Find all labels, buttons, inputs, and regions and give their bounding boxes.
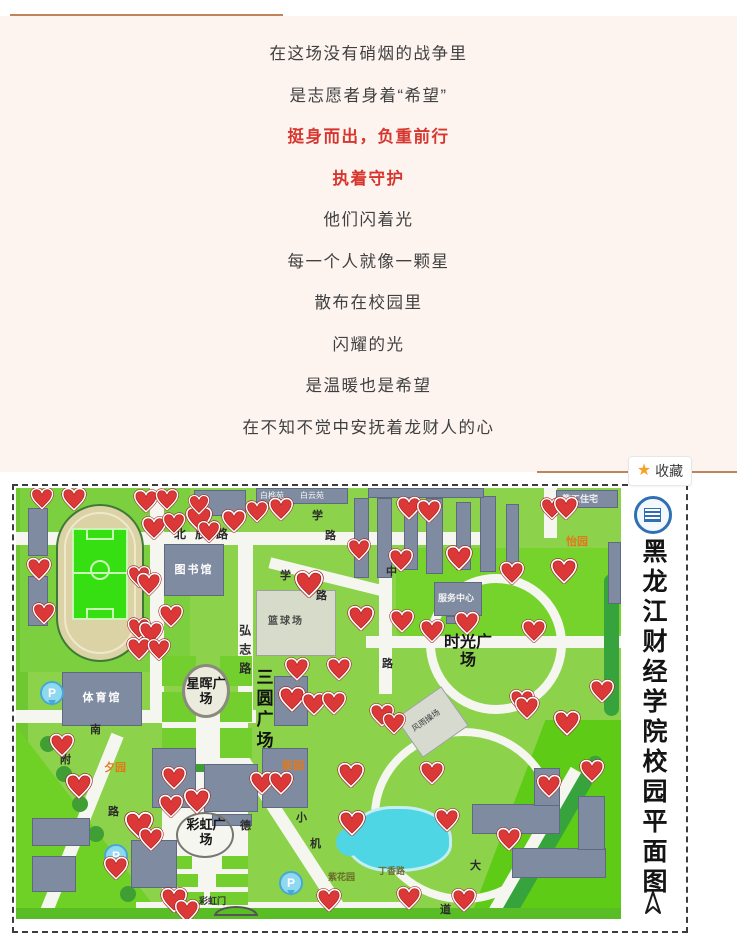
heart-icon [49, 733, 75, 762]
poem-line: 挺身而出，负重前行 [0, 117, 737, 159]
map-label: 紫花园 [328, 872, 355, 882]
heart-icon [338, 810, 366, 841]
map-shape [28, 508, 48, 556]
map-shape [506, 504, 519, 564]
heart-icon [136, 572, 162, 601]
map-label: 大 [470, 860, 481, 873]
map-shape [512, 848, 606, 878]
map-shape [88, 826, 104, 842]
map-label: 星晖广场 [182, 677, 230, 707]
heart-icon [347, 605, 375, 636]
map-shape [120, 886, 136, 902]
map-path-ring [86, 608, 114, 620]
heart-icon [30, 488, 54, 515]
heart-icon [197, 520, 221, 548]
heart-icon [26, 557, 52, 586]
map-shape [578, 796, 605, 850]
map-label: 道 [440, 904, 451, 917]
heart-icon [174, 899, 200, 919]
heart-icon [536, 774, 562, 803]
map-title-text: 黑龙江财经学院校园平面图 [640, 538, 665, 898]
map-shape [32, 818, 90, 846]
heart-icon [65, 773, 93, 804]
favorite-button-label: 收藏 [655, 461, 683, 481]
heart-icon [103, 856, 129, 885]
map-label: 白云苑 [300, 491, 324, 500]
heart-icon [550, 558, 578, 589]
heart-icon [347, 538, 371, 566]
map-shape [480, 496, 496, 572]
top-divider-line [10, 14, 283, 16]
map-path-ring [90, 560, 110, 580]
heart-icon [579, 759, 605, 788]
heart-icon [61, 488, 87, 516]
campus-map-image[interactable]: 北辰路学路学路中路弘志路三圆广场星晖广场时光广场彩虹广场图书馆体育馆教工住宅服务… [12, 484, 688, 933]
heart-icon [221, 509, 247, 538]
poem-line: 散布在校园里 [0, 283, 737, 325]
heart-icon [499, 561, 525, 590]
map-label: 小 [296, 812, 307, 825]
heart-icon [162, 512, 186, 540]
map-shape [368, 488, 484, 498]
map-label: 机 [310, 838, 321, 851]
map-label: 体育馆 [66, 692, 138, 705]
heart-icon [183, 788, 211, 819]
heart-icon [419, 619, 445, 648]
heart-icon [589, 679, 615, 708]
heart-icon [268, 497, 294, 526]
heart-icon [158, 794, 184, 823]
map-label: 怡园 [566, 536, 588, 549]
map-label: 德 [240, 820, 251, 833]
heart-icon [496, 827, 522, 856]
parking-icon: P [40, 681, 64, 705]
map-path-ring [86, 528, 114, 540]
star-icon: ★ [637, 463, 651, 479]
heart-icon [268, 771, 294, 800]
heart-icon [521, 619, 547, 648]
map-label: 丁香路 [378, 866, 405, 876]
map-shape [238, 532, 253, 714]
poem-line: 他们闪着光 [0, 200, 737, 242]
map-title-strip: 黑龙江财经学院校园平面图 [621, 488, 684, 929]
poem-line: 在不知不觉中安抚着龙财人的心 [0, 408, 737, 450]
map-label: 学 [312, 510, 323, 523]
heart-icon [388, 548, 414, 577]
map-shape [216, 874, 248, 887]
poem-line: 是志愿者身着“希望” [0, 76, 737, 118]
school-logo-icon [634, 496, 672, 534]
article-page: 在这场没有硝烟的战争里是志愿者身着“希望”挺身而出，负重前行执着守护他们闪着光每… [0, 0, 737, 940]
map-shape [608, 542, 621, 604]
map-label: 弘志路 [237, 624, 251, 681]
heart-icon [389, 609, 415, 638]
heart-icon [321, 691, 347, 720]
poem-line: 每一个人就像一颗星 [0, 242, 737, 284]
map-label: 路 [108, 806, 119, 819]
map-label: 彩虹广场 [182, 818, 230, 848]
heart-icon [445, 545, 473, 576]
map-label: 夕园 [104, 762, 126, 775]
map-label: 三圆广场 [253, 668, 273, 752]
heart-icon [514, 696, 540, 725]
map-label: 服务中心 [438, 593, 474, 603]
poem-line: 闪耀的光 [0, 325, 737, 367]
poem-text-block: 在这场没有硝烟的战争里是志愿者身着“希望”挺身而出，负重前行执着守护他们闪着光每… [0, 34, 737, 449]
heart-icon [396, 886, 422, 915]
map-label: 学 [280, 570, 291, 583]
map-label: 篮球场 [268, 616, 324, 628]
heart-icon [284, 657, 310, 686]
heart-icon [147, 638, 171, 666]
heart-icon [434, 808, 460, 837]
heart-icon [454, 611, 480, 640]
map-shape [222, 856, 248, 869]
poem-line: 执着守护 [0, 159, 737, 201]
map-label: 彩虹门 [199, 896, 226, 906]
poem-line: 在这场没有硝烟的战争里 [0, 34, 737, 76]
map-shape [220, 728, 252, 758]
map-label: 图书馆 [166, 564, 222, 577]
heart-icon [245, 500, 269, 528]
favorite-button[interactable]: ★ 收藏 [628, 456, 692, 486]
heart-icon [416, 499, 442, 528]
heart-icon [326, 657, 352, 686]
heart-icon [294, 570, 324, 603]
heart-icon [337, 762, 365, 793]
heart-icon [188, 494, 210, 520]
heart-icon [451, 888, 477, 917]
map-shape [32, 856, 76, 892]
heart-icon [32, 602, 56, 630]
parking-icon: P [279, 871, 303, 895]
heart-icon [553, 496, 579, 525]
map-area: 北辰路学路学路中路弘志路三圆广场星晖广场时光广场彩虹广场图书馆体育馆教工住宅服务… [16, 488, 621, 919]
map-label: 路 [382, 658, 393, 671]
heart-icon [138, 827, 164, 856]
logo-seal [644, 508, 661, 522]
heart-icon [419, 761, 445, 790]
poem-line: 是温暖也是希望 [0, 366, 737, 408]
heart-icon [553, 710, 581, 741]
map-label: 南 [90, 724, 101, 737]
north-arrow-icon [643, 890, 663, 921]
map-label: 路 [325, 530, 336, 543]
heart-icon [382, 712, 406, 740]
heart-icon [316, 888, 342, 917]
